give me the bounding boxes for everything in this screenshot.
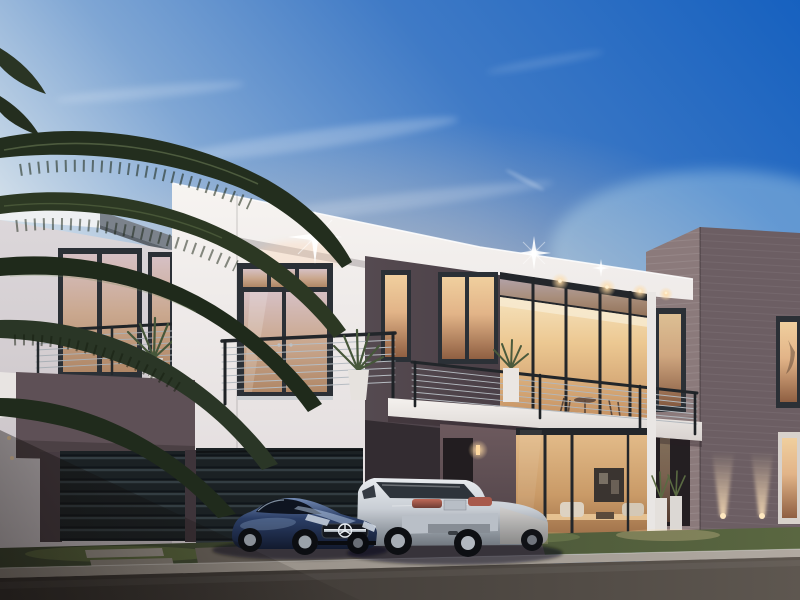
terrace-glass-wall — [500, 272, 648, 430]
entry-sconce — [476, 445, 480, 455]
wall-artwork — [594, 468, 624, 502]
bmw-exhaust — [448, 531, 458, 535]
charcoal-window-b — [438, 272, 498, 364]
interior-sofa — [622, 503, 644, 516]
scene-canvas — [0, 0, 800, 600]
brick-side-window-upper — [776, 316, 800, 408]
architectural-rendering — [0, 0, 800, 600]
brick-side-window-lower — [778, 432, 800, 524]
interior-table — [596, 512, 614, 519]
lawn-lit-patch — [616, 529, 720, 541]
bmw-diffuser — [428, 524, 490, 533]
bmw-taillight-right — [468, 497, 492, 506]
bmw-license-plate — [444, 500, 466, 510]
bmw-taillight-left — [412, 499, 442, 508]
charcoal-window-a — [381, 270, 411, 362]
facade-end-strip — [647, 292, 656, 548]
